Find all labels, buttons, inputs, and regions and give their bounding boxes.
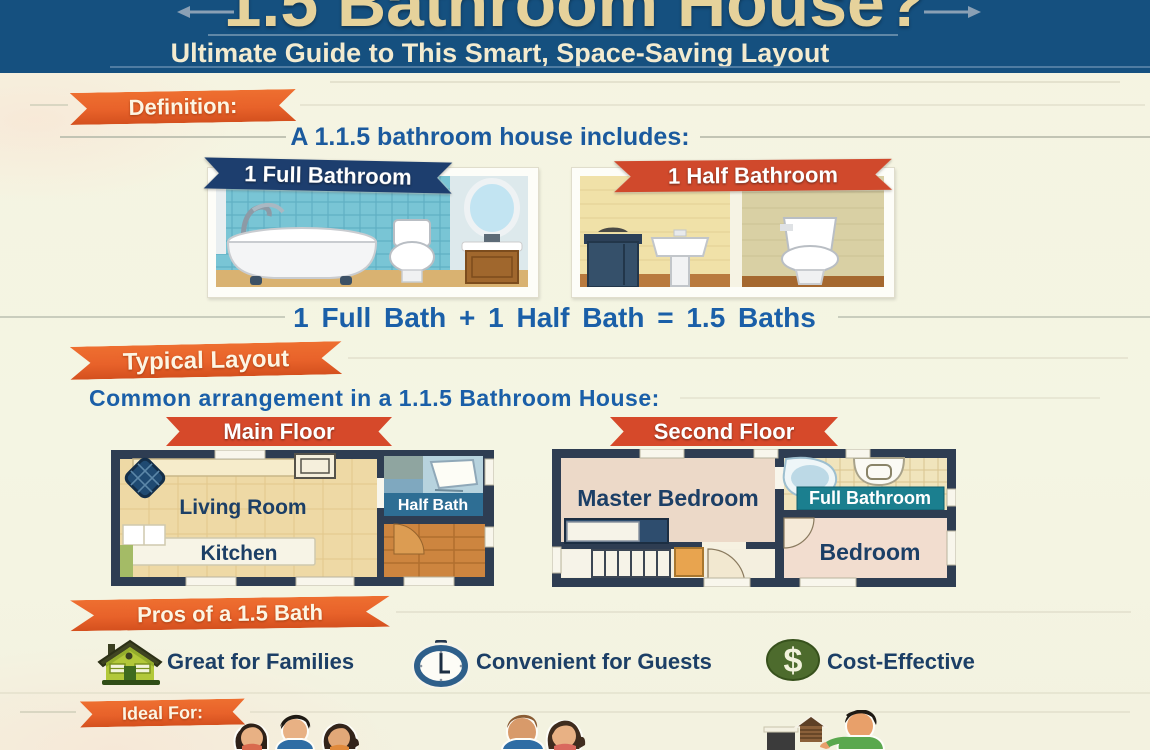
svg-text:Half Bath: Half Bath: [398, 497, 468, 514]
svg-text:Bedroom: Bedroom: [820, 539, 921, 565]
svg-text:$: $: [784, 642, 803, 680]
svg-text:Kitchen: Kitchen: [200, 542, 277, 565]
svg-text:Full Bathroom: Full Bathroom: [809, 488, 931, 508]
svg-text:Master Bedroom: Master Bedroom: [577, 485, 758, 511]
svg-text:Living Room: Living Room: [179, 496, 306, 519]
